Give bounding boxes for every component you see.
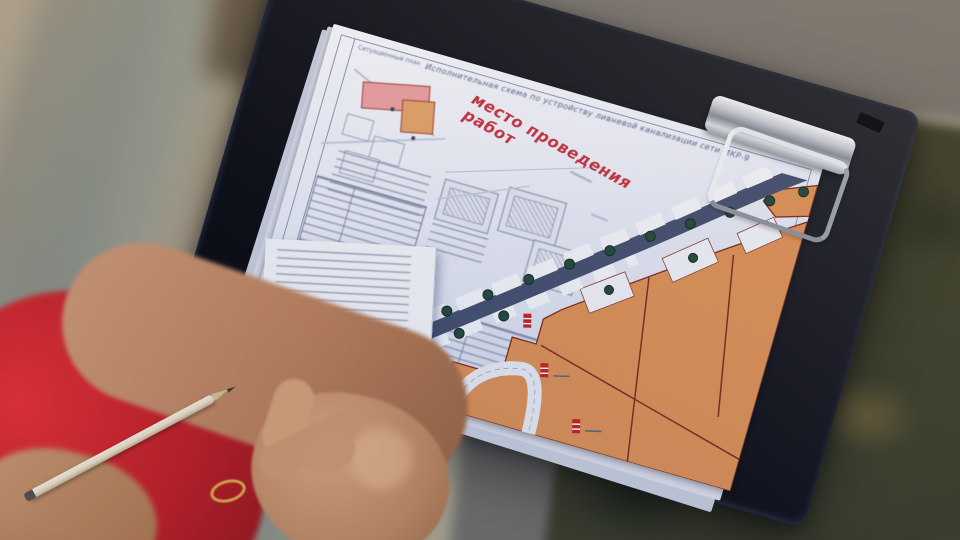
marker xyxy=(540,363,548,377)
mini-plan-building-outline xyxy=(342,113,375,142)
marker xyxy=(572,419,580,433)
marker xyxy=(523,314,531,328)
knuckle-highlight xyxy=(350,428,412,490)
table-column-line xyxy=(336,187,355,251)
photo-scene: Ситуационный план Исполнительная схема п… xyxy=(0,0,960,540)
mini-plan-highlighted-block xyxy=(400,99,435,134)
mini-plan-node xyxy=(390,107,395,112)
